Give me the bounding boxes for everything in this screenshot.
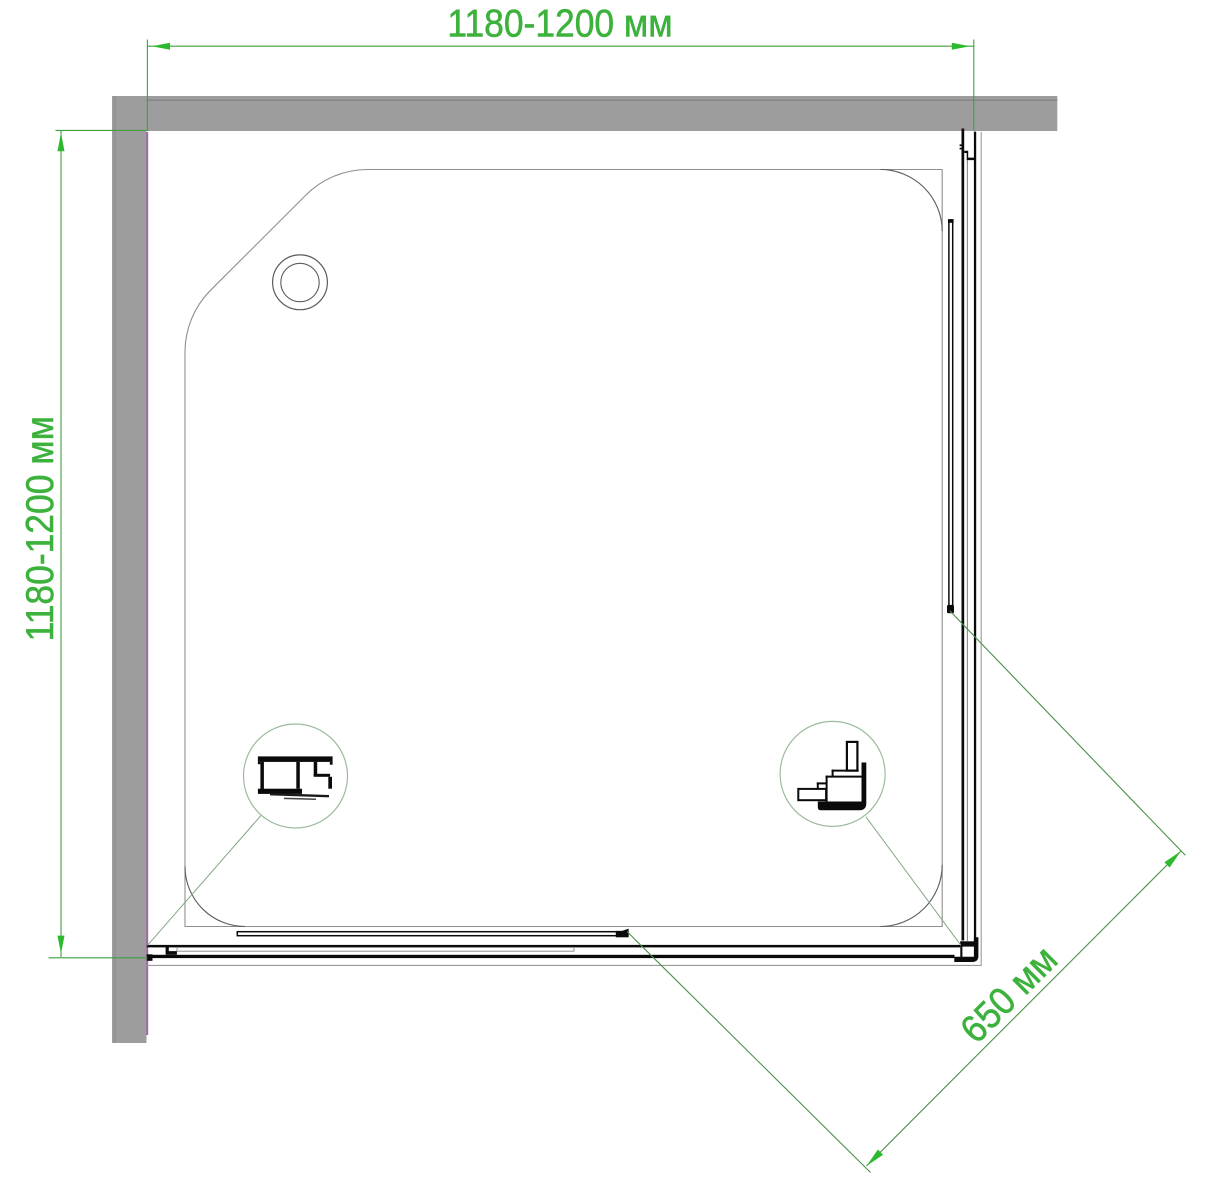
svg-text:1180-1200 мм: 1180-1200 мм	[18, 416, 61, 641]
svg-text:1180-1200 мм: 1180-1200 мм	[447, 2, 672, 45]
